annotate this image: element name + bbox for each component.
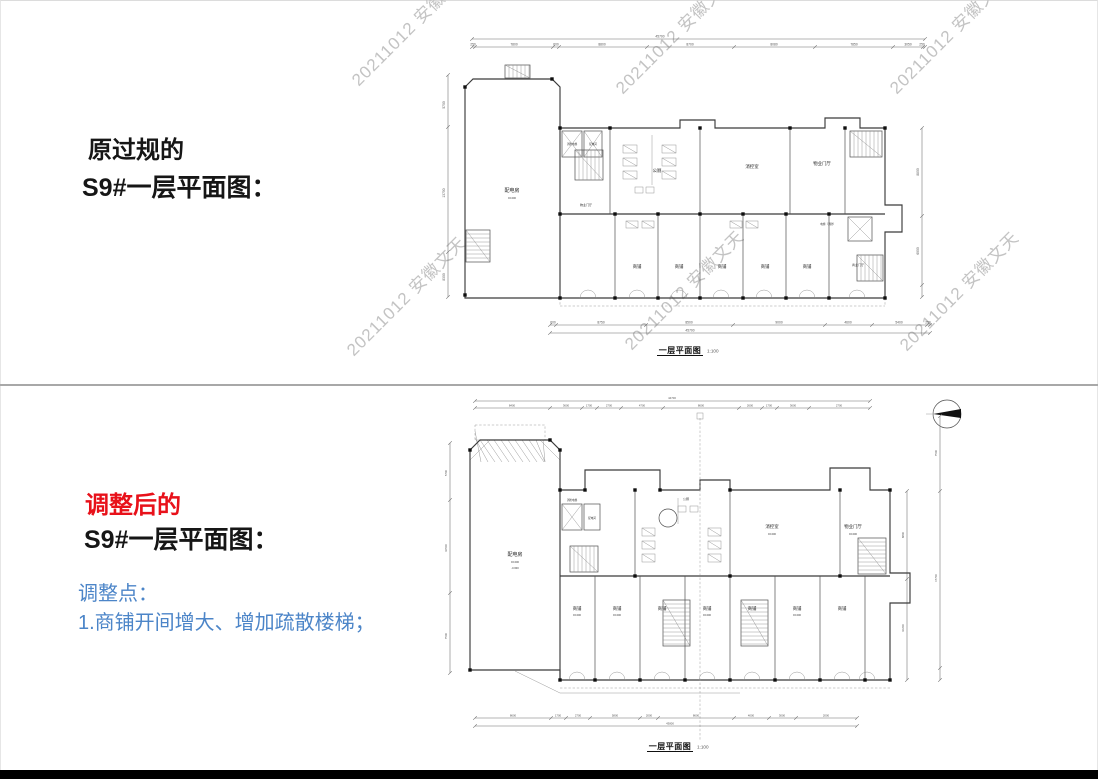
- dim-label: 600: [550, 320, 556, 324]
- elevation-label: ±0.000: [768, 532, 776, 536]
- plan-scale: 1:100: [697, 745, 709, 750]
- dim-label: 3600: [563, 403, 570, 407]
- dim-label: 4700: [639, 403, 646, 407]
- dim-label: 250: [925, 320, 931, 324]
- elevation-label: ±0.000: [508, 196, 516, 200]
- dim-label: 5700: [442, 101, 446, 109]
- dim-label: 7850: [850, 42, 858, 46]
- stairs: [575, 150, 603, 180]
- dim-label: 9000: [775, 320, 783, 324]
- room-label: 消控室: [745, 163, 759, 170]
- dim-total-bottom: 43800: [666, 721, 674, 725]
- adjusted-plan-heading-line1: 调整后的: [85, 485, 181, 520]
- room-label: 公厕: [683, 497, 689, 501]
- columns: [468, 438, 891, 681]
- room-label: 商铺: [748, 605, 757, 612]
- dim-label: 8600: [693, 713, 700, 717]
- room-label: 商铺: [573, 605, 582, 612]
- shop-doors: [569, 672, 875, 680]
- dim-label: 1700: [766, 403, 773, 407]
- dim-label: 8800: [901, 531, 905, 538]
- dim-label: 10200: [901, 624, 905, 632]
- original-plan-heading-line2: S9#一层平面图：: [82, 168, 276, 204]
- dim-label: 5700: [444, 469, 448, 476]
- evacuation-stairs: [663, 600, 690, 646]
- dim-label: 600: [553, 42, 559, 46]
- elevation-label: -0.600: [511, 566, 519, 570]
- canopy-hatch: [475, 431, 545, 462]
- room-label: 商铺: [633, 263, 642, 270]
- dim-label: 2700: [836, 403, 843, 407]
- dim-label: 1700: [555, 713, 562, 717]
- north-arrow-icon: [926, 400, 961, 428]
- room-label: 消防电梯: [567, 498, 578, 502]
- elevation-label: ±0.000: [793, 613, 801, 617]
- original-plan-heading-line1: 原过规的: [88, 130, 184, 165]
- wc-stalls: [708, 528, 721, 562]
- wc-stalls: [746, 221, 758, 228]
- fire-elevator-shaft: [848, 217, 872, 241]
- dim-label: 2700: [606, 403, 613, 407]
- wc-stalls: [642, 221, 654, 228]
- stairs: [466, 230, 490, 262]
- dim-label: 8700: [686, 42, 694, 46]
- room-label: 商铺: [838, 605, 847, 612]
- dim-label: 13700: [442, 188, 446, 197]
- dim-label: 1700: [586, 403, 593, 407]
- room-label: 商铺: [761, 263, 770, 270]
- dim-label: 8080: [770, 42, 778, 46]
- dim-label: 250: [919, 42, 925, 46]
- room-label: 商铺: [803, 263, 812, 270]
- stairs: [850, 131, 882, 157]
- dim-label: 8600: [698, 403, 705, 407]
- dim-label: 2000: [646, 713, 653, 717]
- stairs: [858, 538, 886, 574]
- room-label: 配电房: [504, 187, 519, 194]
- dim-total-bottom: 45700: [685, 328, 694, 332]
- floor-plan-original: 45700 250 7800 600 8800 8700 8080 7850 3…: [430, 25, 975, 375]
- dim-label: 7500: [934, 449, 938, 456]
- dim-label: 8600: [510, 713, 517, 717]
- dim-label: 8300: [442, 273, 446, 281]
- dim-label: 2700: [575, 713, 582, 717]
- room-label: 物业门厅: [844, 523, 862, 530]
- section-divider: [0, 384, 1098, 386]
- room-label: 物业门厅: [813, 160, 831, 167]
- dim-label: 7500: [444, 632, 448, 639]
- dim-label: 5800: [612, 713, 619, 717]
- stairs: [570, 546, 598, 572]
- dim-label: 3600: [790, 403, 797, 407]
- wc-stalls: [730, 221, 742, 228]
- wc-stalls: [626, 221, 638, 228]
- room-label: 配电间: [589, 142, 597, 146]
- wc-stalls: [623, 145, 637, 179]
- floor-plan-adjusted: 44700 8400 3600 1700 2700 4700 8600 2600…: [420, 388, 995, 773]
- adjustment-notes-title: 调整点：: [78, 577, 158, 606]
- stairs: [505, 65, 530, 78]
- room-label: 配电房: [507, 551, 522, 558]
- building-outline: [465, 79, 902, 298]
- room-label: 配电间: [588, 516, 596, 520]
- fire-elevator-shaft: [562, 504, 582, 530]
- elevation-label: ±0.000: [573, 613, 581, 617]
- dim-total-top: 45700: [655, 34, 664, 38]
- room-label: 商业门厅: [852, 262, 864, 267]
- room-label: 商铺: [658, 605, 667, 612]
- shop-doors: [580, 290, 865, 298]
- dim-label: 6900: [916, 247, 920, 255]
- dim-label: 4600: [844, 320, 852, 324]
- room-label: 商铺: [613, 605, 622, 612]
- room-label: 商铺: [675, 263, 684, 270]
- dim-label: 8500: [685, 320, 693, 324]
- adjustment-note-item: 1.商铺开间增大、增加疏散楼梯；: [78, 606, 375, 635]
- plan-scale: 1:100: [707, 349, 719, 354]
- dim-label: 5400: [895, 320, 903, 324]
- elevation-label: ±0.000: [613, 613, 621, 617]
- room-label: 商铺: [793, 605, 802, 612]
- wc-stalls: [642, 528, 655, 562]
- adjusted-plan-heading-line2: S9#一层平面图：: [84, 520, 278, 556]
- dim-label: 17700: [934, 574, 938, 582]
- plan-caption: 一层平面图: [659, 346, 702, 355]
- room-label: 物业门厅: [580, 202, 592, 207]
- dim-label: 8800: [598, 42, 606, 46]
- dim-label: 8800: [916, 168, 920, 176]
- dim-label: 8400: [509, 403, 516, 407]
- room-label: 商铺: [718, 263, 727, 270]
- dim-label: 7800: [510, 42, 518, 46]
- dim-label: 3000: [779, 713, 786, 717]
- comparison-slide: { "colors": { "accent_red": "#e8111a", "…: [0, 0, 1098, 779]
- footer-bar: [0, 770, 1098, 779]
- room-label: 电梯（消防）: [820, 222, 836, 226]
- dim-label: 2000: [823, 713, 830, 717]
- stairs: [857, 255, 883, 281]
- dim-label: 8750: [597, 320, 605, 324]
- dim-label: 3050: [904, 42, 912, 46]
- dim-label: 2600: [747, 403, 754, 407]
- dim-label: 250: [470, 42, 476, 46]
- elevation-label: ±0.000: [511, 560, 519, 564]
- elevation-label: ±0.000: [703, 613, 711, 617]
- room-label: 消控室: [765, 523, 779, 530]
- dim-label: 4000: [748, 713, 755, 717]
- room-label: 商铺: [703, 605, 712, 612]
- wc-stalls: [662, 145, 676, 179]
- plan-caption: 一层平面图: [649, 742, 692, 751]
- elevation-label: ±0.000: [849, 532, 857, 536]
- dim-total-top: 44700: [668, 396, 676, 400]
- dim-label: 10500: [444, 544, 448, 552]
- room-label: 公厕: [653, 168, 662, 174]
- room-label: 消防电梯: [567, 142, 578, 146]
